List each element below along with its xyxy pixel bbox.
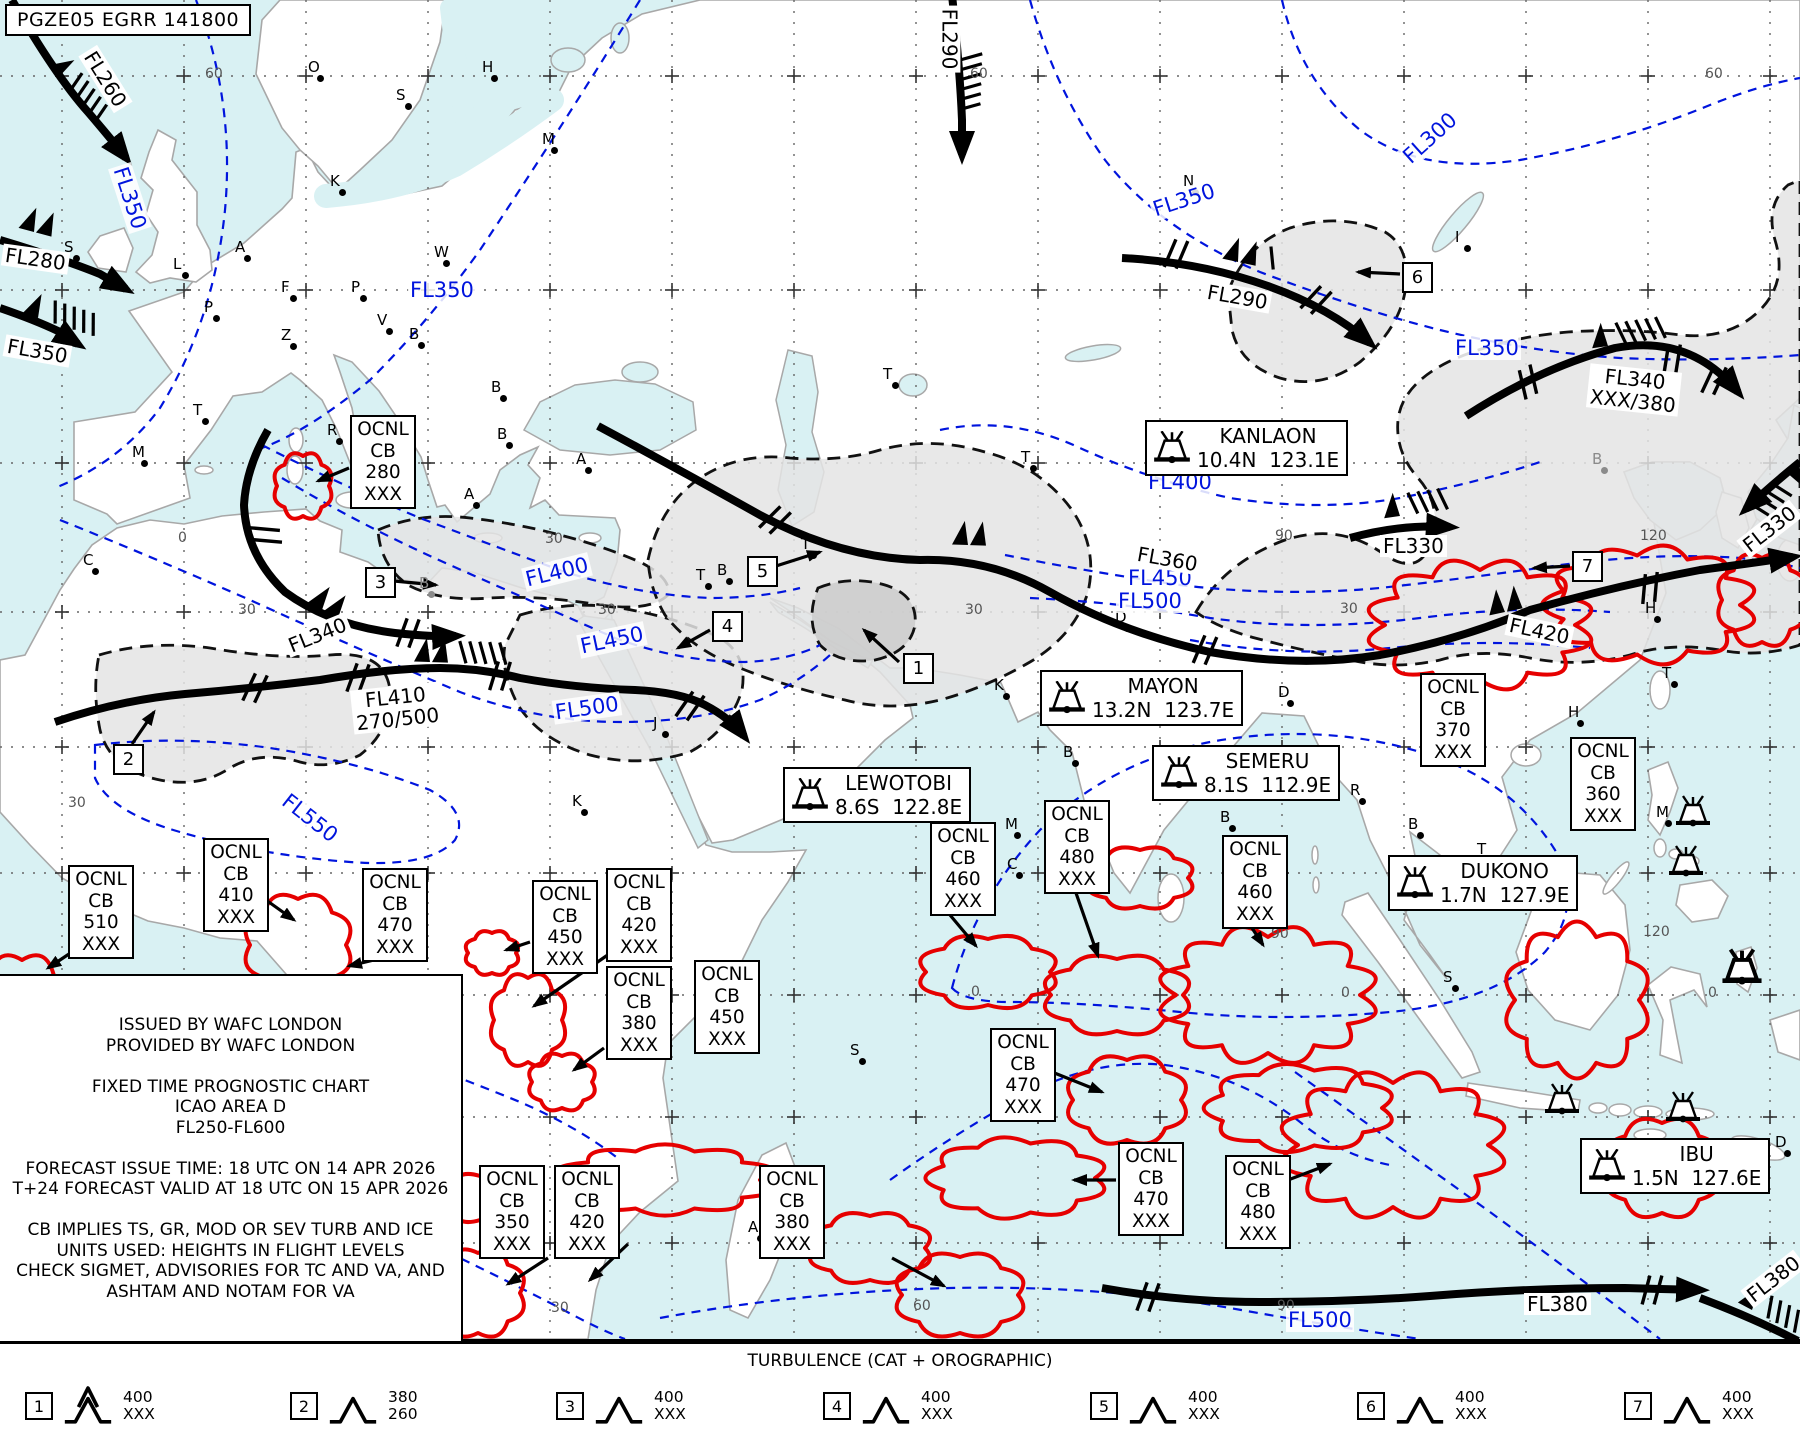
city-dot — [1229, 825, 1236, 832]
volcano-box: DUKONO1.7N 127.9E — [1388, 855, 1578, 911]
cb-base-level: XXX — [696, 1029, 758, 1051]
city-marker: B — [409, 325, 419, 343]
volcano-box: SEMERU8.1S 112.9E — [1152, 745, 1340, 801]
city-letter: A — [235, 238, 245, 256]
cb-base-level: XXX — [1120, 1211, 1182, 1233]
info-line: ICAO AREA D — [0, 1097, 461, 1118]
cb-base-level: XXX — [1572, 806, 1634, 828]
city-marker: M — [1656, 803, 1669, 821]
city-letter: P — [204, 298, 213, 316]
legend-base-level: XXX — [654, 1406, 686, 1423]
city-marker: S — [1443, 968, 1453, 986]
cb-box: OCNLCB360XXX — [1570, 737, 1636, 831]
city-marker: B — [717, 561, 727, 579]
cb-top-level: 450 — [696, 1007, 758, 1029]
city-dot — [1464, 245, 1471, 252]
city-letter: S — [850, 1041, 860, 1059]
city-letter: M — [1005, 815, 1018, 833]
city-marker: B — [1220, 808, 1230, 826]
city-marker: V — [377, 311, 387, 329]
city-dot — [506, 442, 513, 449]
city-dot — [405, 103, 412, 110]
volcano-box: KANLAON10.4N 123.1E — [1145, 420, 1348, 476]
cb-type: CB — [1422, 699, 1484, 721]
volcano-icon — [792, 778, 828, 810]
city-letter: V — [377, 311, 387, 329]
city-dot — [1671, 681, 1678, 688]
cb-base-level: XXX — [992, 1097, 1054, 1119]
graticule-label: 60 — [205, 66, 223, 82]
graticule-label: 30 — [545, 531, 563, 547]
cb-box: OCNLCB470XXX — [1118, 1142, 1184, 1236]
cb-type: CB — [761, 1191, 823, 1213]
cb-base-level: XXX — [1224, 904, 1286, 926]
cb-type: CB — [1227, 1181, 1289, 1203]
city-dot — [491, 75, 498, 82]
city-dot — [705, 583, 712, 590]
city-marker: T — [193, 401, 202, 419]
city-letter: B — [1220, 808, 1230, 826]
cb-type: CB — [534, 906, 596, 928]
volcano-coords: 1.5N 127.6E — [1632, 1166, 1761, 1190]
city-dot — [73, 255, 80, 262]
info-line: UNITS USED: HEIGHTS IN FLIGHT LEVELS — [0, 1241, 461, 1262]
city-marker: K — [994, 676, 1004, 694]
graticule-label: 60 — [970, 66, 988, 82]
city-dot — [360, 295, 367, 302]
cb-base-level: XXX — [608, 1035, 670, 1057]
cb-top-level: 450 — [534, 927, 596, 949]
city-letter: R — [1350, 781, 1360, 799]
city-letter: B — [497, 425, 507, 443]
city-dot — [810, 552, 817, 559]
city-marker: T — [1021, 448, 1030, 466]
cb-box: OCNLCB460XXX — [1222, 835, 1288, 929]
cb-amount: OCNL — [481, 1169, 543, 1191]
city-marker: R — [327, 421, 337, 439]
city-marker: R — [1350, 781, 1360, 799]
city-letter: W — [434, 243, 449, 261]
cb-amount: OCNL — [1224, 839, 1286, 861]
city-letter: J — [653, 714, 657, 732]
volcano-name: LEWOTOBI — [845, 771, 952, 795]
cb-amount: OCNL — [534, 884, 596, 906]
city-dot — [92, 568, 99, 575]
chart-info-box: ISSUED BY WAFC LONDONPROVIDED BY WAFC LO… — [0, 974, 463, 1341]
legend-title: TURBULENCE (CAT + OROGRAPHIC) — [0, 1351, 1800, 1371]
jet-level-label: FL290 — [938, 6, 960, 73]
city-marker: B — [1408, 815, 1418, 833]
city-marker: C — [1007, 855, 1017, 873]
city-marker: A — [464, 485, 474, 503]
legend-base-level: XXX — [921, 1406, 953, 1423]
city-marker: T — [696, 566, 705, 584]
cb-amount: OCNL — [364, 872, 426, 894]
city-dot — [859, 1058, 866, 1065]
city-letter: S — [396, 86, 406, 104]
city-dot — [290, 295, 297, 302]
city-marker: T — [1662, 664, 1671, 682]
volcano-coords: 8.1S 112.9E — [1204, 773, 1331, 797]
city-dot — [428, 591, 435, 598]
volcano-box: MAYON13.2N 123.7E — [1040, 670, 1243, 726]
city-dot — [1359, 798, 1366, 805]
city-marker: C — [83, 551, 93, 569]
volcano-name: SEMERU — [1226, 749, 1310, 773]
chart-id-box: PGZE05 EGRR 141800 — [5, 4, 251, 36]
city-marker: P — [204, 298, 213, 316]
graticule-label: 60 — [1705, 66, 1723, 82]
tropopause-level-label: FL500 — [1286, 1308, 1354, 1332]
jet-level-label: FL340 XXX/380 — [1586, 363, 1682, 416]
cb-amount: OCNL — [1422, 677, 1484, 699]
volcano-coords: 13.2N 123.7E — [1092, 698, 1234, 722]
city-dot — [473, 502, 480, 509]
tropopause-level-label: FL500 — [1116, 589, 1184, 613]
city-marker: K — [572, 792, 582, 810]
city-letter: O — [308, 58, 320, 76]
city-letter: M — [1656, 803, 1669, 821]
cb-base-level: XXX — [1422, 742, 1484, 764]
legend-top-level: 400 — [1455, 1389, 1487, 1406]
cb-type: CB — [481, 1191, 543, 1213]
city-dot — [443, 260, 450, 267]
graticule-label: 0 — [1708, 985, 1717, 1001]
city-dot — [1452, 985, 1459, 992]
cb-top-level: 480 — [1227, 1202, 1289, 1224]
city-dot — [1287, 700, 1294, 707]
city-letter: M — [132, 443, 145, 461]
turbulence-symbol-icon — [61, 1386, 115, 1426]
graticule-label: 120 — [1640, 528, 1667, 544]
city-letter: T — [1021, 448, 1030, 466]
turbulence-area-number: 4 — [712, 611, 743, 642]
city-marker: L — [173, 255, 181, 273]
city-marker: B — [497, 425, 507, 443]
legend-base-level: XXX — [1722, 1406, 1754, 1423]
legend-item: 3400XXX — [556, 1386, 686, 1426]
city-letter: Z — [281, 326, 291, 344]
city-letter: T — [883, 365, 892, 383]
cb-top-level: 480 — [1046, 847, 1108, 869]
city-marker: F — [281, 278, 290, 296]
city-letter: D — [1775, 1133, 1787, 1151]
legend-item-number: 1 — [25, 1392, 53, 1420]
turbulence-area-number: 2 — [113, 744, 144, 775]
cb-box: OCNLCB480XXX — [1225, 1155, 1291, 1249]
cb-type: CB — [205, 864, 267, 886]
city-letter: A — [748, 1218, 758, 1236]
cb-box: OCNLCB410XXX — [203, 838, 269, 932]
graticule-label: 60 — [913, 1298, 931, 1314]
cb-top-level: 470 — [1120, 1189, 1182, 1211]
city-letter: K — [572, 792, 582, 810]
city-marker: S — [396, 86, 406, 104]
turbulence-legend: TURBULENCE (CAT + OROGRAPHIC) 1400XXX238… — [0, 1339, 1800, 1451]
city-marker: A — [235, 238, 245, 256]
graticule-label: 90 — [1275, 528, 1293, 544]
cb-amount: OCNL — [608, 872, 670, 894]
city-letter: T — [193, 401, 202, 419]
city-marker: H — [1645, 599, 1656, 617]
turbulence-area-number: 3 — [365, 567, 396, 598]
city-dot — [202, 418, 209, 425]
info-line: FORECAST ISSUE TIME: 18 UTC ON 14 APR 20… — [0, 1159, 461, 1180]
legend-top-level: 400 — [123, 1389, 155, 1406]
legend-item: 7400XXX — [1624, 1386, 1754, 1426]
cb-box: OCNLCB450XXX — [694, 960, 760, 1054]
city-letter: B — [491, 378, 501, 396]
cb-box: OCNLCB370XXX — [1420, 673, 1486, 767]
info-line: PROVIDED BY WAFC LONDON — [0, 1036, 461, 1057]
cb-top-level: 360 — [1572, 784, 1634, 806]
city-dot — [213, 315, 220, 322]
city-marker: B — [491, 378, 501, 396]
legend-top-level: 400 — [1722, 1389, 1754, 1406]
city-marker: M — [1005, 815, 1018, 833]
city-dot — [1016, 872, 1023, 879]
legend-base-level: 260 — [388, 1406, 418, 1423]
city-letter: B — [1408, 815, 1418, 833]
cb-top-level: 460 — [1224, 882, 1286, 904]
legend-item: 4400XXX — [823, 1386, 953, 1426]
city-letter: P — [351, 278, 360, 296]
cb-base-level: XXX — [1227, 1224, 1289, 1246]
graticule-label: 120 — [1643, 924, 1670, 940]
turbulence-area-number: 7 — [1572, 551, 1603, 582]
cb-box: OCNLCB450XXX — [532, 880, 598, 974]
city-dot — [551, 147, 558, 154]
city-letter: T — [696, 566, 705, 584]
cb-box: OCNLCB480XXX — [1044, 800, 1110, 894]
cb-base-level: XXX — [1046, 869, 1108, 891]
volcano-icon — [1586, 1149, 1628, 1183]
cb-top-level: 460 — [932, 869, 994, 891]
info-line: ISSUED BY WAFC LONDON — [0, 1015, 461, 1036]
city-letter: B — [419, 574, 429, 592]
city-dot — [662, 731, 669, 738]
city-marker: H — [482, 58, 493, 76]
city-dot — [1030, 465, 1037, 472]
cb-type: CB — [1224, 861, 1286, 883]
cb-amount: OCNL — [932, 826, 994, 848]
city-dot — [1417, 832, 1424, 839]
city-letter: H — [1568, 703, 1579, 721]
city-marker: A — [576, 450, 586, 468]
city-dot — [1601, 467, 1608, 474]
cb-amount: OCNL — [608, 970, 670, 992]
chart-id-text: PGZE05 EGRR 141800 — [17, 9, 239, 31]
area-number-arrow — [1358, 272, 1400, 274]
cb-top-level: 420 — [608, 915, 670, 937]
city-letter: I — [1455, 228, 1459, 246]
volcano-icon — [1154, 431, 1190, 463]
tropopause-level-label: FL350 — [1453, 336, 1521, 360]
city-dot — [500, 395, 507, 402]
volcano-icon — [1151, 431, 1193, 465]
city-dot — [585, 467, 592, 474]
city-marker: A — [748, 1218, 758, 1236]
cb-amount: OCNL — [556, 1169, 618, 1191]
city-letter: D — [1278, 683, 1290, 701]
city-letter: C — [1007, 855, 1017, 873]
cb-top-level: 350 — [481, 1212, 543, 1234]
city-letter: B — [1063, 743, 1073, 761]
city-letter: A — [464, 485, 474, 503]
cb-box: OCNLCB470XXX — [362, 868, 428, 962]
city-marker: I — [1455, 228, 1459, 246]
city-marker: D — [1775, 1133, 1787, 1151]
city-marker: T — [801, 535, 810, 553]
city-letter: A — [576, 450, 586, 468]
cb-top-level: 370 — [1422, 720, 1484, 742]
jet-level-label: FL410 270/500 — [350, 681, 443, 734]
turbulence-symbol-icon — [1126, 1386, 1180, 1426]
volcano-coords: 10.4N 123.1E — [1197, 448, 1339, 472]
graticule-label: 0 — [178, 530, 187, 546]
volcano-name: IBU — [1680, 1142, 1714, 1166]
cb-top-level: 380 — [761, 1212, 823, 1234]
city-dot — [581, 809, 588, 816]
city-marker: M — [132, 443, 145, 461]
cb-base-level: XXX — [608, 937, 670, 959]
cb-amount: OCNL — [696, 964, 758, 986]
cb-base-level: XXX — [932, 891, 994, 913]
area-number-arrow — [1534, 566, 1570, 568]
volcano-name: MAYON — [1127, 674, 1198, 698]
city-marker: O — [308, 58, 320, 76]
cb-type: CB — [1572, 763, 1634, 785]
cb-base-level: XXX — [761, 1234, 823, 1256]
legend-item: 2380260 — [290, 1386, 418, 1426]
city-letter: R — [327, 421, 337, 439]
city-dot — [244, 255, 251, 262]
volcano-icon — [1049, 681, 1085, 713]
cb-box: OCNLCB280XXX — [350, 415, 416, 509]
cb-type: CB — [1046, 826, 1108, 848]
city-marker: J — [653, 714, 657, 732]
cb-top-level: 470 — [364, 915, 426, 937]
city-letter: C — [83, 551, 93, 569]
cb-type: CB — [364, 894, 426, 916]
city-letter: M — [542, 130, 555, 148]
jet-level-label: FL380 — [1524, 1293, 1591, 1315]
city-dot — [1072, 760, 1079, 767]
city-dot — [418, 342, 425, 349]
turbulence-area-number: 6 — [1402, 262, 1433, 293]
city-dot — [386, 328, 393, 335]
graticule-label: 0 — [1341, 985, 1350, 1001]
city-marker: S — [850, 1041, 860, 1059]
graticule-label: 30 — [1340, 601, 1358, 617]
legend-base-level: XXX — [1455, 1406, 1487, 1423]
city-letter: T — [1662, 664, 1671, 682]
legend-item: 6400XXX — [1357, 1386, 1487, 1426]
info-line: CB IMPLIES TS, GR, MOD OR SEV TURB AND I… — [0, 1220, 461, 1241]
legend-item: 1400XXX — [25, 1386, 155, 1426]
city-dot — [1784, 1150, 1791, 1157]
jet-level-label: FL330 — [1380, 535, 1447, 557]
cb-type: CB — [1120, 1168, 1182, 1190]
cb-box: OCNLCB380XXX — [606, 966, 672, 1060]
cb-amount: OCNL — [70, 869, 132, 891]
legend-top-level: 380 — [388, 1389, 418, 1406]
cb-amount: OCNL — [992, 1032, 1054, 1054]
city-marker: P — [351, 278, 360, 296]
city-letter: L — [173, 255, 181, 273]
volcano-icon — [1589, 1149, 1625, 1181]
info-line — [0, 1138, 461, 1159]
cb-box: OCNLCB470XXX — [990, 1028, 1056, 1122]
legend-base-level: XXX — [1188, 1406, 1220, 1423]
volcano-icon — [1394, 866, 1436, 900]
city-letter: H — [1645, 599, 1656, 617]
legend-item-number: 3 — [556, 1392, 584, 1420]
info-line: FL250-FL600 — [0, 1118, 461, 1139]
city-letter: H — [482, 58, 493, 76]
volcano-coords: 1.7N 127.9E — [1440, 883, 1569, 907]
volcano-icon — [1397, 866, 1433, 898]
city-letter: F — [281, 278, 290, 296]
cb-box: OCNLCB420XXX — [554, 1165, 620, 1259]
cb-amount: OCNL — [352, 419, 414, 441]
city-marker: D — [1278, 683, 1290, 701]
city-dot — [1014, 832, 1021, 839]
cb-base-level: XXX — [481, 1234, 543, 1256]
info-line: FIXED TIME PROGNOSTIC CHART — [0, 1077, 461, 1098]
cb-box: OCNLCB350XXX — [479, 1165, 545, 1259]
volcano-icon — [1158, 756, 1200, 790]
city-letter: B — [1592, 450, 1602, 468]
city-marker: M — [542, 130, 555, 148]
legend-item-number: 6 — [1357, 1392, 1385, 1420]
sigwx-chart: PGZE05 EGRR 141800 FL260FL280FL350FL290F… — [0, 0, 1800, 1451]
cb-box: OCNLCB510XXX — [68, 865, 134, 959]
cb-amount: OCNL — [1572, 741, 1634, 763]
city-dot — [290, 343, 297, 350]
turbulence-symbol-icon — [326, 1386, 380, 1426]
city-marker: K — [330, 172, 340, 190]
cb-amount: OCNL — [761, 1169, 823, 1191]
volcano-name: KANLAON — [1220, 424, 1317, 448]
cb-amount: OCNL — [1120, 1146, 1182, 1168]
cb-type: CB — [608, 894, 670, 916]
city-dot — [141, 460, 148, 467]
city-dot — [1124, 625, 1131, 632]
volcano-coords: 8.6S 122.8E — [835, 795, 962, 819]
cb-type: CB — [696, 986, 758, 1008]
cb-amount: OCNL — [205, 842, 267, 864]
legend-item-number: 7 — [1624, 1392, 1652, 1420]
cb-type: CB — [992, 1054, 1054, 1076]
cb-amount: OCNL — [1046, 804, 1108, 826]
cb-type: CB — [70, 891, 132, 913]
city-dot — [1654, 616, 1661, 623]
info-line — [0, 1056, 461, 1077]
cb-top-level: 380 — [608, 1013, 670, 1035]
cb-top-level: 510 — [70, 912, 132, 934]
info-line: T+24 FORECAST VALID AT 18 UTC ON 15 APR … — [0, 1179, 461, 1200]
city-marker: H — [1568, 703, 1579, 721]
graticule-label: 30 — [238, 602, 256, 618]
cb-base-level: XXX — [205, 907, 267, 929]
legend-base-level: XXX — [123, 1406, 155, 1423]
legend-top-level: 400 — [1188, 1389, 1220, 1406]
city-letter: K — [994, 676, 1004, 694]
city-dot — [317, 75, 324, 82]
turbulence-symbol-icon — [1393, 1386, 1447, 1426]
city-marker: B — [419, 574, 429, 592]
